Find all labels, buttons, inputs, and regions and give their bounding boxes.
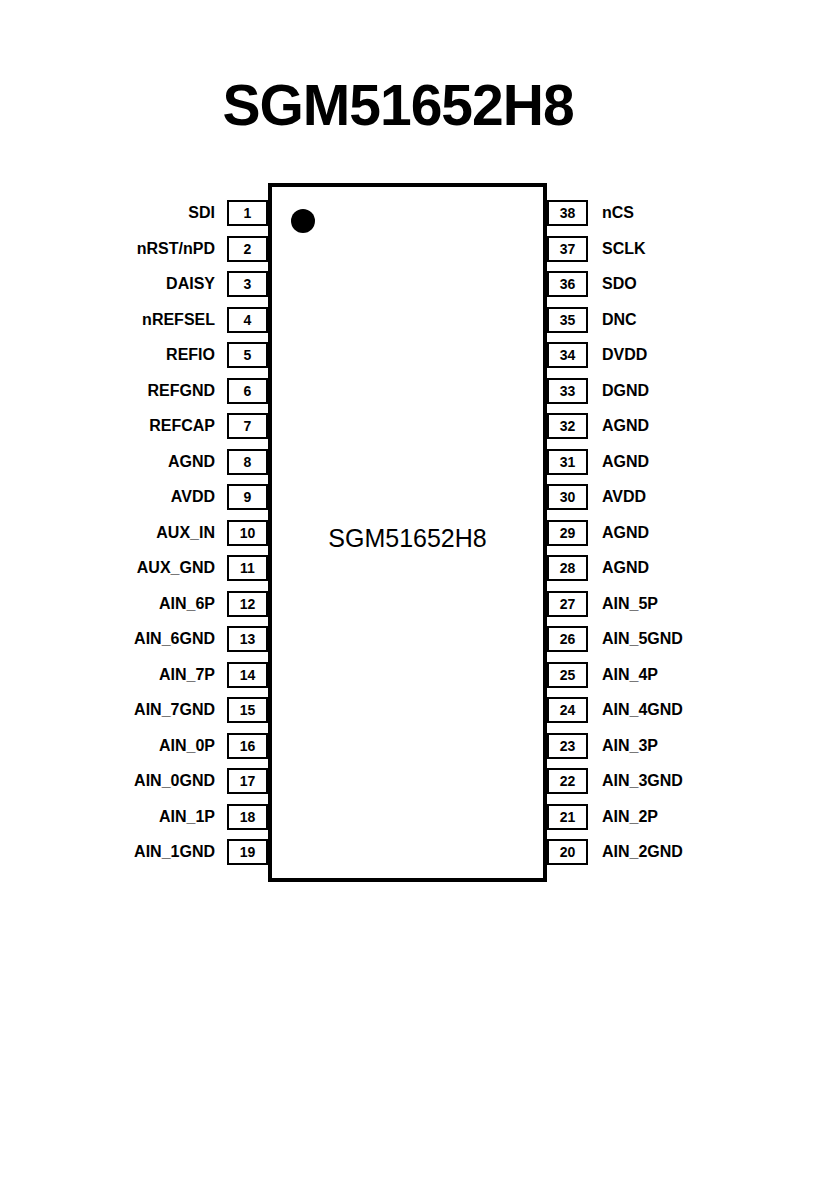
pin-number: 2 [244,242,252,256]
pin-number: 15 [240,703,256,717]
pin-number: 17 [240,774,256,788]
pin-box-32: 32 [547,413,588,439]
pin-box-2: 2 [227,236,268,262]
pin-label-nrst-npd: nRST/nPD [30,236,215,262]
pin-label-ain-1p: AIN_1P [30,804,215,830]
pin-label-ain-6p: AIN_6P [30,591,215,617]
pin-label-agnd: AGND [602,413,802,439]
pin-label-dvdd: DVDD [602,342,802,368]
pin-label-nrefsel: nREFSEL [30,307,215,333]
pin-number: 9 [244,490,252,504]
pin-label-ncs: nCS [602,200,802,226]
pin-label-ain-4gnd: AIN_4GND [602,697,802,723]
pin-number: 4 [244,313,252,327]
pin-label-aux-in: AUX_IN [30,520,215,546]
pin-label-agnd: AGND [602,555,802,581]
pin-box-24: 24 [547,697,588,723]
pin-number: 24 [560,703,576,717]
pin-box-3: 3 [227,271,268,297]
pin-box-26: 26 [547,626,588,652]
pin-box-15: 15 [227,697,268,723]
pin-number: 20 [560,845,576,859]
pin-box-33: 33 [547,378,588,404]
pin-label-ain-3gnd: AIN_3GND [602,768,802,794]
pin-label-avdd: AVDD [602,484,802,510]
pin-label-agnd: AGND [602,520,802,546]
pin-number: 13 [240,632,256,646]
pin-number: 30 [560,490,576,504]
pin-box-30: 30 [547,484,588,510]
pin-box-23: 23 [547,733,588,759]
pin-box-18: 18 [227,804,268,830]
pin-number: 10 [240,526,256,540]
pin-label-sclk: SCLK [602,236,802,262]
pin-label-ain-2p: AIN_2P [602,804,802,830]
pin-label-ain-1gnd: AIN_1GND [30,839,215,865]
pin-box-27: 27 [547,591,588,617]
pin-number: 5 [244,348,252,362]
pin-number: 16 [240,739,256,753]
pin-number: 12 [240,597,256,611]
pin-number: 33 [560,384,576,398]
pin-box-13: 13 [227,626,268,652]
pin1-marker-dot [291,209,315,233]
pin-label-agnd: AGND [30,449,215,475]
pin-number: 35 [560,313,576,327]
pin-label-ain-0gnd: AIN_0GND [30,768,215,794]
pin-box-19: 19 [227,839,268,865]
pin-number: 1 [244,206,252,220]
pin-number: 11 [240,561,255,575]
pin-number: 27 [560,597,576,611]
pin-label-ain-5p: AIN_5P [602,591,802,617]
pin-number: 3 [244,277,252,291]
pin-number: 6 [244,384,252,398]
pin-label-ain-5gnd: AIN_5GND [602,626,802,652]
pin-box-38: 38 [547,200,588,226]
pin-label-aux-gnd: AUX_GND [30,555,215,581]
pin-label-dnc: DNC [602,307,802,333]
pin-box-14: 14 [227,662,268,688]
pin-box-21: 21 [547,804,588,830]
pin-box-8: 8 [227,449,268,475]
pin-box-25: 25 [547,662,588,688]
pin-label-ain-6gnd: AIN_6GND [30,626,215,652]
pin-number: 32 [560,419,576,433]
pin-label-refgnd: REFGND [30,378,215,404]
pin-box-17: 17 [227,768,268,794]
pin-label-dgnd: DGND [602,378,802,404]
pin-number: 21 [560,810,576,824]
pin-box-1: 1 [227,200,268,226]
chip-label: SGM51652H8 [268,524,547,553]
pin-number: 31 [560,455,576,469]
pin-box-31: 31 [547,449,588,475]
pin-box-9: 9 [227,484,268,510]
pin-box-34: 34 [547,342,588,368]
pin-box-20: 20 [547,839,588,865]
pin-label-ain-0p: AIN_0P [30,733,215,759]
pin-box-12: 12 [227,591,268,617]
pin-label-avdd: AVDD [30,484,215,510]
pin-label-sdi: SDI [30,200,215,226]
pin-box-28: 28 [547,555,588,581]
pin-number: 37 [560,242,576,256]
pin-label-daisy: DAISY [30,271,215,297]
pin-label-agnd: AGND [602,449,802,475]
pin-box-5: 5 [227,342,268,368]
pin-number: 14 [240,668,256,682]
pin-label-sdo: SDO [602,271,802,297]
pin-number: 7 [244,419,252,433]
pin-box-4: 4 [227,307,268,333]
pin-number: 34 [560,348,576,362]
pin-number: 8 [244,455,252,469]
pin-label-ain-3p: AIN_3P [602,733,802,759]
pin-number: 18 [240,810,256,824]
pin-label-ain-2gnd: AIN_2GND [602,839,802,865]
pin-box-10: 10 [227,520,268,546]
pin-box-22: 22 [547,768,588,794]
pin-number: 29 [560,526,576,540]
pin-number: 36 [560,277,576,291]
pin-number: 22 [560,774,576,788]
page-title: SGM51652H8 [0,72,796,138]
pin-number: 25 [560,668,576,682]
pin-box-7: 7 [227,413,268,439]
pin-box-36: 36 [547,271,588,297]
pin-box-35: 35 [547,307,588,333]
pinout-diagram: SGM51652H8 SGM51652H8 1SDI2nRST/nPD3DAIS… [0,0,827,1195]
pin-label-refcap: REFCAP [30,413,215,439]
pin-label-refio: REFIO [30,342,215,368]
pin-box-37: 37 [547,236,588,262]
pin-number: 19 [240,845,256,859]
pin-label-ain-7gnd: AIN_7GND [30,697,215,723]
pin-box-16: 16 [227,733,268,759]
pin-number: 23 [560,739,576,753]
pin-number: 26 [560,632,576,646]
pin-number: 38 [560,206,576,220]
pin-box-11: 11 [227,555,268,581]
pin-number: 28 [560,561,576,575]
pin-box-29: 29 [547,520,588,546]
pin-label-ain-4p: AIN_4P [602,662,802,688]
pin-box-6: 6 [227,378,268,404]
pin-label-ain-7p: AIN_7P [30,662,215,688]
